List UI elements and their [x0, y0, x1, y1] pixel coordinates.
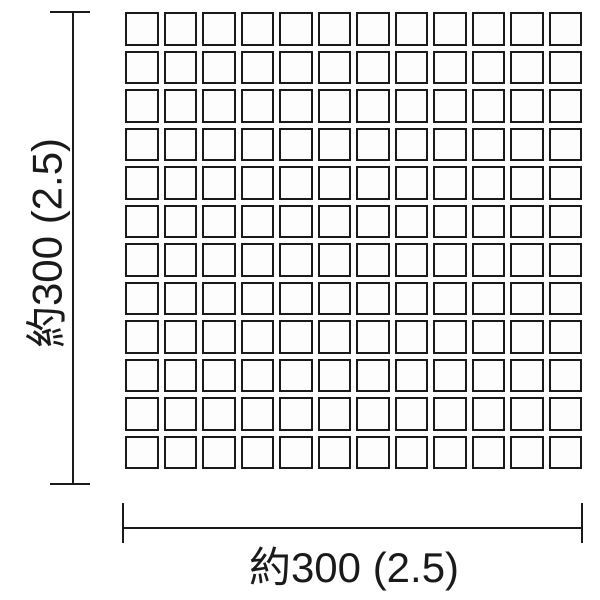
tile	[164, 436, 198, 470]
tile	[433, 320, 467, 354]
tile	[202, 12, 236, 46]
tile	[318, 436, 352, 470]
tile	[549, 436, 583, 470]
tile	[395, 282, 429, 316]
tile	[433, 205, 467, 239]
tile	[164, 359, 198, 393]
tile	[356, 282, 390, 316]
tile	[318, 359, 352, 393]
tile	[356, 166, 390, 200]
tile	[395, 320, 429, 354]
tile	[356, 243, 390, 277]
tile	[510, 359, 544, 393]
tile	[279, 243, 313, 277]
tile	[549, 12, 583, 46]
tile-sheet-dimension-diagram: 約300 (2.5) 約300 (2.5)	[0, 0, 600, 600]
tile	[395, 51, 429, 85]
tile	[164, 397, 198, 431]
tile	[549, 128, 583, 162]
tile	[202, 128, 236, 162]
tile	[356, 128, 390, 162]
tile	[510, 205, 544, 239]
tile	[395, 166, 429, 200]
tile	[318, 51, 352, 85]
tile	[164, 51, 198, 85]
tile	[433, 51, 467, 85]
tile	[472, 89, 506, 123]
tile	[318, 128, 352, 162]
tile	[472, 436, 506, 470]
tile	[164, 243, 198, 277]
tile	[318, 282, 352, 316]
tile	[395, 205, 429, 239]
tile	[510, 166, 544, 200]
tile	[549, 51, 583, 85]
tile	[241, 436, 275, 470]
tile	[202, 243, 236, 277]
height-dimension-label: 約300 (2.5)	[14, 138, 75, 348]
tile	[356, 320, 390, 354]
tile	[241, 205, 275, 239]
tile	[433, 436, 467, 470]
tile	[125, 436, 159, 470]
tile	[433, 359, 467, 393]
tile	[125, 51, 159, 85]
tile	[433, 282, 467, 316]
tile	[279, 89, 313, 123]
tile	[510, 243, 544, 277]
horizontal-dimension-left-tick	[122, 503, 124, 543]
tile	[202, 397, 236, 431]
tile	[356, 397, 390, 431]
vertical-dimension-top-tick	[50, 11, 90, 13]
tile	[125, 166, 159, 200]
tile	[318, 205, 352, 239]
tile	[472, 243, 506, 277]
tile	[241, 51, 275, 85]
tile	[279, 51, 313, 85]
tile	[472, 359, 506, 393]
tile	[549, 320, 583, 354]
tile	[549, 243, 583, 277]
tile	[472, 51, 506, 85]
tile	[125, 89, 159, 123]
tile	[549, 397, 583, 431]
tile	[279, 128, 313, 162]
tile	[356, 89, 390, 123]
tile	[279, 12, 313, 46]
tile	[164, 128, 198, 162]
tile	[510, 397, 544, 431]
tile	[318, 12, 352, 46]
tile	[125, 320, 159, 354]
tile	[472, 128, 506, 162]
tile	[241, 359, 275, 393]
tile	[241, 282, 275, 316]
tile	[472, 282, 506, 316]
tile	[125, 359, 159, 393]
tile	[472, 397, 506, 431]
tile	[164, 282, 198, 316]
tile	[125, 397, 159, 431]
tile	[279, 166, 313, 200]
tile	[279, 397, 313, 431]
tile	[433, 128, 467, 162]
tile	[202, 282, 236, 316]
tile	[318, 397, 352, 431]
tile	[164, 12, 198, 46]
tile	[164, 205, 198, 239]
tile	[318, 89, 352, 123]
tile	[356, 51, 390, 85]
tile	[395, 243, 429, 277]
tile	[549, 89, 583, 123]
tile	[202, 436, 236, 470]
tile	[472, 166, 506, 200]
tile	[433, 89, 467, 123]
tile	[279, 320, 313, 354]
tile	[241, 89, 275, 123]
tile	[510, 436, 544, 470]
tile	[241, 166, 275, 200]
tile	[318, 320, 352, 354]
tile	[164, 89, 198, 123]
tile	[395, 397, 429, 431]
tile	[472, 12, 506, 46]
tile	[433, 243, 467, 277]
tile	[241, 320, 275, 354]
tile	[549, 205, 583, 239]
tile	[125, 128, 159, 162]
tile	[510, 89, 544, 123]
tile	[356, 12, 390, 46]
tile	[125, 282, 159, 316]
horizontal-dimension-line	[123, 527, 583, 529]
tile	[510, 51, 544, 85]
tile	[395, 436, 429, 470]
tile	[433, 397, 467, 431]
tile	[318, 243, 352, 277]
tile	[356, 359, 390, 393]
tile	[395, 12, 429, 46]
tile	[125, 243, 159, 277]
tile	[241, 243, 275, 277]
vertical-dimension-bottom-tick	[50, 483, 90, 485]
tile	[202, 205, 236, 239]
tile-grid	[125, 12, 582, 469]
tile	[241, 128, 275, 162]
tile	[202, 51, 236, 85]
tile	[510, 282, 544, 316]
tile	[279, 205, 313, 239]
tile	[433, 12, 467, 46]
tile	[395, 128, 429, 162]
horizontal-dimension-right-tick	[581, 503, 583, 543]
tile	[510, 320, 544, 354]
tile	[356, 205, 390, 239]
tile	[279, 436, 313, 470]
tile	[125, 205, 159, 239]
tile	[318, 166, 352, 200]
tile	[241, 397, 275, 431]
tile	[510, 12, 544, 46]
width-dimension-label: 約300 (2.5)	[249, 534, 459, 595]
tile	[202, 359, 236, 393]
tile	[472, 205, 506, 239]
tile	[125, 12, 159, 46]
tile	[433, 166, 467, 200]
tile	[279, 359, 313, 393]
tile	[279, 282, 313, 316]
tile	[395, 359, 429, 393]
tile	[164, 320, 198, 354]
tile	[549, 166, 583, 200]
tile	[202, 320, 236, 354]
tile	[395, 89, 429, 123]
tile	[549, 359, 583, 393]
tile	[164, 166, 198, 200]
tile	[202, 89, 236, 123]
tile	[241, 12, 275, 46]
tile	[549, 282, 583, 316]
tile	[356, 436, 390, 470]
tile	[472, 320, 506, 354]
tile	[202, 166, 236, 200]
tile	[510, 128, 544, 162]
